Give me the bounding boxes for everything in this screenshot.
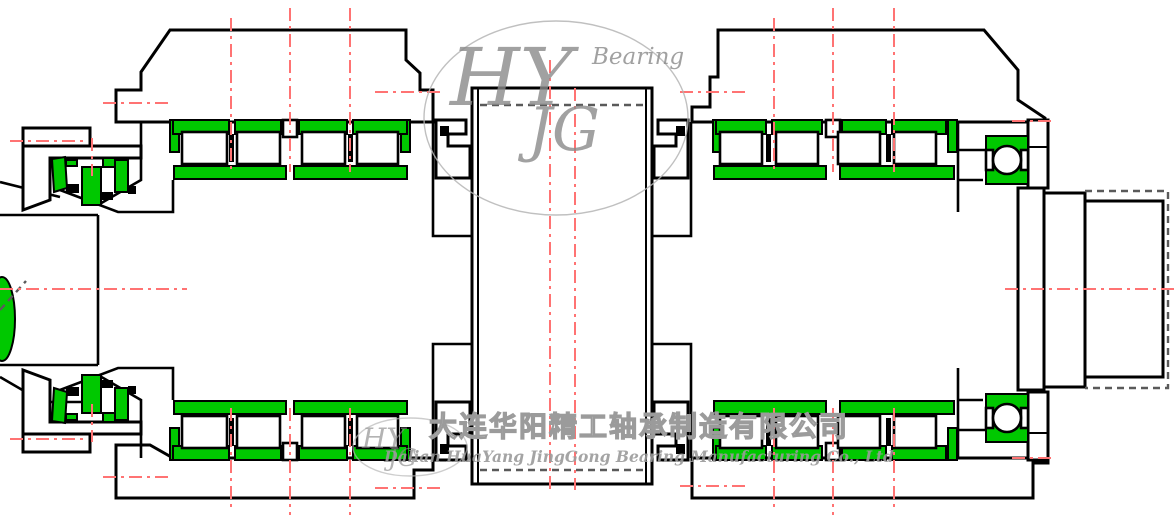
seal-bracket-left-top (436, 120, 470, 178)
ball-bearing-bottom (986, 394, 1028, 442)
watermark-jg: JG (517, 95, 600, 165)
ball-bearing-top (986, 136, 1028, 184)
company-name-cn: 大连华阳精工轴承制造有限公司 (429, 410, 849, 443)
four-row-bearing-right-top (713, 120, 957, 179)
seal-bracket-right-top (654, 120, 688, 178)
chock-left-top (116, 30, 433, 122)
thrust-bearing-rollers-bottom (52, 375, 136, 423)
thrust-bearing-rollers-top (52, 157, 136, 205)
company-watermark: 大连华阳精工轴承制造有限公司 Dalian HuaYang JingGong B… (383, 410, 894, 466)
shaft-stub-right (1085, 201, 1163, 377)
company-name-en: Dalian HuaYang JingGong Bearing Manufact… (383, 447, 894, 466)
chock-right-top (692, 30, 1045, 122)
watermark-bearing-word: Bearing (591, 44, 684, 70)
bearing-assembly-drawing: HY Bearing JG HY JG 大连华阳精工轴承制造有限公司 Dalia… (0, 0, 1175, 515)
shaft-left-nose (0, 182, 98, 402)
